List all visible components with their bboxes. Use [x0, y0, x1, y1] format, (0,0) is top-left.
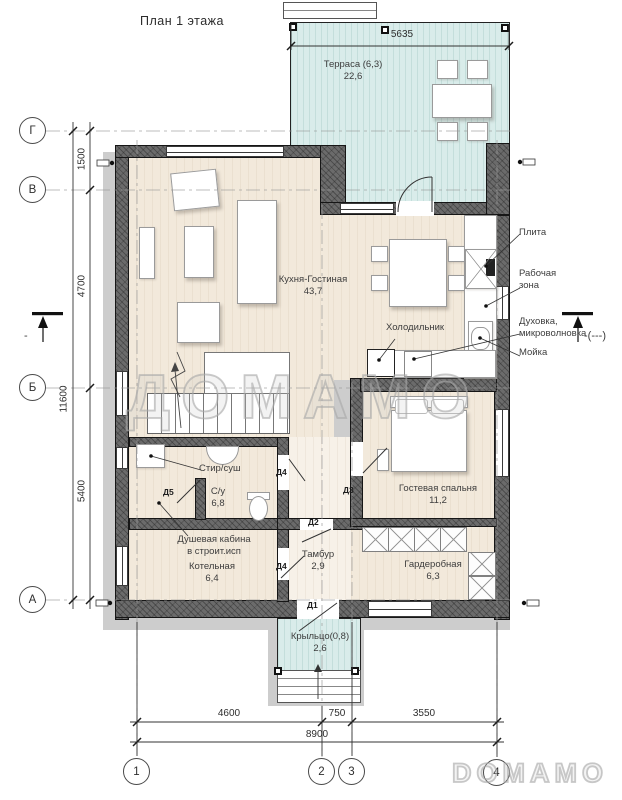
- watermark-corner: DOMAMO: [452, 758, 608, 789]
- room-label-living: Кухня-Гостиная 43,7: [251, 274, 375, 299]
- axis-col-3-label: 3: [348, 766, 354, 778]
- pillow: [431, 399, 464, 414]
- dim-left-1500: 1500: [77, 148, 88, 170]
- dim-top-width: 5635: [378, 29, 426, 40]
- door-label-d4: Д4: [276, 467, 287, 477]
- oven-line1: Духовка,: [519, 316, 586, 328]
- dim-bottom-750: 750: [317, 708, 357, 719]
- washer-dryer: [136, 444, 165, 468]
- door-label-d4b: Д4: [276, 561, 287, 571]
- wardrobe-unit: [414, 527, 441, 552]
- vestibule-area: 2,9: [288, 561, 348, 573]
- axis-row-b-label: Б: [29, 382, 37, 394]
- room-label-terrace: Терраса (6,3) 22,6: [293, 59, 413, 84]
- label-sink: Мойка: [519, 347, 547, 359]
- work-zone-line2: зона: [519, 280, 556, 292]
- label-work-zone: Рабочая зона: [519, 268, 556, 292]
- dining-chair: [448, 275, 465, 291]
- vestibule-name: Тамбур: [288, 549, 348, 561]
- room-label-boiler: Котельная 6,4: [172, 561, 252, 586]
- terrace-chair: [467, 122, 488, 141]
- stair-treads: [147, 393, 290, 434]
- terrace-chair: [437, 122, 458, 141]
- shelf: [139, 227, 155, 279]
- shower-line1: Душевая кабина: [164, 534, 264, 546]
- axis-row-a: А: [19, 586, 46, 613]
- axis-row-g: Г: [19, 117, 46, 144]
- dining-table: [389, 239, 447, 307]
- door-label-d2: Д2: [308, 517, 319, 527]
- window-bedroom-east: [495, 409, 509, 477]
- bathroom-name: С/у: [188, 486, 248, 498]
- floor-plan-canvas: План 1 этажа: [0, 0, 622, 800]
- dim-bottom-3550: 3550: [394, 708, 454, 719]
- terrace-area: 22,6: [293, 71, 413, 83]
- room-label-bathroom: С/у 6,8: [188, 486, 248, 511]
- window-kitchen-east: [495, 286, 509, 320]
- axis-row-b: Б: [19, 374, 46, 401]
- axis-col-2-label: 2: [318, 766, 324, 778]
- work-zone-line1: Рабочая: [519, 268, 556, 280]
- wardrobe-unit: [440, 527, 467, 552]
- window-living-north: [166, 146, 284, 157]
- living-area: 43,7: [251, 286, 375, 298]
- room-label-wardrobe: Гардеробная 6,3: [393, 559, 473, 584]
- axis-row-v: В: [19, 176, 46, 203]
- axis-row-a-label: А: [29, 594, 37, 606]
- porch-post: [351, 667, 359, 675]
- door-label-d3: Д3: [343, 485, 354, 495]
- living-name: Кухня-Гостиная: [251, 274, 375, 286]
- dining-chair: [371, 246, 388, 262]
- boiler-area: 6,4: [172, 573, 252, 585]
- bathroom-area: 6,8: [188, 498, 248, 510]
- axis-col-1-label: 1: [133, 766, 139, 778]
- bedroom-name: Гостевая спальня: [378, 483, 498, 495]
- axis-col-4: 4: [483, 759, 510, 786]
- dim-bottom-total: 8900: [287, 729, 347, 740]
- axis-col-1: 1: [123, 758, 150, 785]
- wardrobe-unit: [388, 527, 415, 552]
- porch-post: [274, 667, 282, 675]
- page-title: План 1 этажа: [140, 14, 224, 28]
- armchair: [177, 302, 220, 343]
- axis-col-2: 2: [308, 758, 335, 785]
- dim-bottom-4600: 4600: [199, 708, 259, 719]
- terrace-chair: [467, 60, 488, 79]
- porch-name: Крыльцо(0,8): [280, 631, 360, 643]
- terrace-name: Терраса (6,3): [293, 59, 413, 71]
- porch-area: 2,6: [280, 643, 360, 655]
- terrace-table: [432, 84, 492, 118]
- section-label-left: -: [24, 330, 28, 344]
- door-label-d5: Д5: [163, 487, 174, 497]
- fridge: [367, 349, 395, 377]
- boiler-name: Котельная: [172, 561, 252, 573]
- room-label-vestibule: Тамбур 2,9: [288, 549, 348, 574]
- window-boiler-west: [116, 546, 128, 586]
- room-label-shower: Душевая кабина в строит.исп: [164, 534, 264, 559]
- porch-steps: [277, 670, 361, 703]
- door-label-d1: Д1: [307, 600, 318, 610]
- terrace-post: [289, 23, 297, 31]
- terrace-chair: [437, 60, 458, 79]
- wall-bedroom-south: [350, 518, 497, 527]
- window-kitchen-north: [340, 203, 394, 214]
- wardrobe-name: Гардеробная: [393, 559, 473, 571]
- dim-left-4700: 4700: [77, 275, 88, 297]
- window-bathroom-west: [116, 447, 128, 469]
- axis-col-4-label: 4: [493, 767, 499, 779]
- section-label-right: -(---): [584, 330, 606, 344]
- stair-landing: [204, 352, 290, 394]
- terrace-post: [501, 24, 509, 32]
- label-stove: Плита: [519, 227, 546, 239]
- pillow: [395, 399, 428, 414]
- label-washer: Стир/суш: [199, 463, 241, 475]
- wall-bedroom-north: [360, 378, 497, 392]
- window-stair-west: [116, 371, 128, 416]
- wardrobe-unit: [362, 527, 389, 552]
- terrace-entry-steps: [283, 2, 377, 19]
- wall-exterior-right-top: [486, 143, 510, 215]
- dim-left-total: 11600: [59, 385, 70, 412]
- dining-chair: [448, 246, 465, 262]
- stove-panel: [486, 259, 495, 276]
- shower-line2: в строит.исп: [164, 546, 264, 558]
- label-fridge: Холодильник: [386, 322, 444, 334]
- armchair: [170, 169, 220, 212]
- wardrobe-area: 6,3: [393, 571, 473, 583]
- axis-col-3: 3: [338, 758, 365, 785]
- room-label-porch: Крыльцо(0,8) 2,6: [280, 631, 360, 656]
- label-oven: Духовка, микроволновка: [519, 316, 586, 340]
- window-wardrobe-south: [368, 601, 432, 617]
- toilet: [249, 496, 268, 521]
- bed: [391, 410, 467, 472]
- door-opening-d3: [351, 442, 363, 476]
- room-label-bedroom: Гостевая спальня 11,2: [378, 483, 498, 508]
- sink-bowl: [471, 327, 490, 350]
- armchair: [184, 226, 214, 278]
- axis-row-g-label: Г: [29, 125, 35, 137]
- nightstand: [377, 449, 389, 471]
- door-opening-d1: [297, 599, 339, 619]
- door-opening-terrace: [396, 201, 434, 216]
- oven-line2: микроволновка: [519, 328, 586, 340]
- oven-microwave: [404, 351, 432, 377]
- dim-left-5400: 5400: [77, 480, 88, 502]
- bedroom-area: 11,2: [378, 495, 498, 507]
- axis-row-v-label: В: [29, 184, 37, 196]
